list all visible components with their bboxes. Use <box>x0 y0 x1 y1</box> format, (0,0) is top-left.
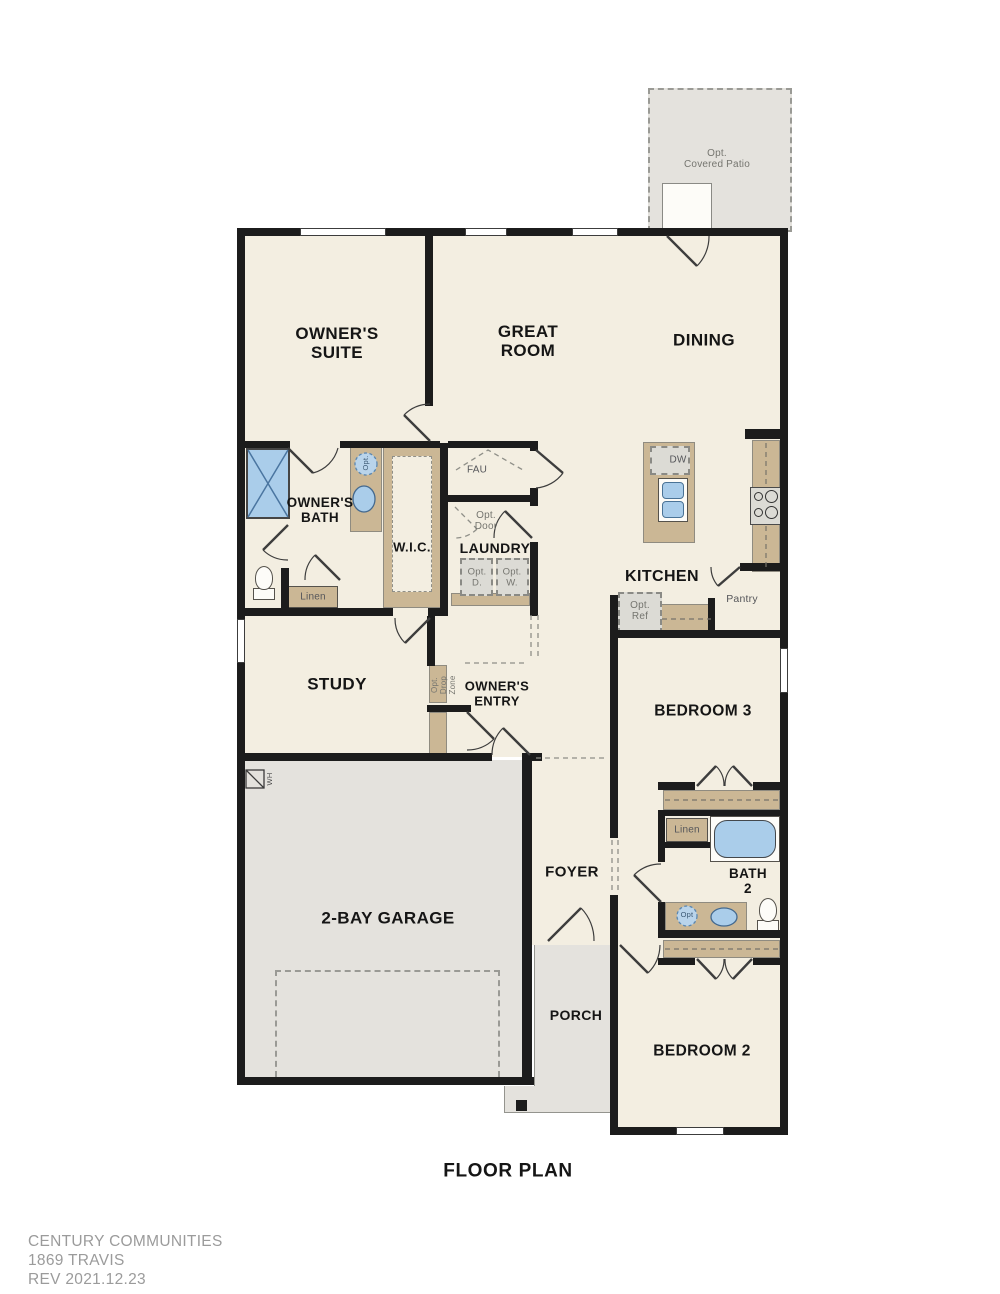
footer-model: 1869 TRAVIS <box>28 1251 223 1270</box>
shower-glass-icon <box>248 450 288 517</box>
footer-revision: REV 2021.12.23 <box>28 1270 223 1289</box>
room-label-dining: DINING <box>673 330 735 349</box>
room-label-owners-entry: OWNER'S ENTRY <box>465 679 529 708</box>
bath2-linen-label: Linen <box>674 824 699 835</box>
linework-layer <box>0 0 1000 1294</box>
dishwasher-label: DW <box>669 454 686 465</box>
cased-openings <box>465 615 618 893</box>
water-heater-icon <box>246 770 264 788</box>
page-title: FLOOR PLAN <box>443 1160 573 1181</box>
opt-drop-zone-label: Opt. Drop Zone <box>430 675 458 694</box>
room-label-garage: 2-BAY GARAGE <box>321 908 454 927</box>
room-label-study: STUDY <box>307 674 367 693</box>
owners-sink-icon <box>353 486 375 512</box>
opt-dryer-label: Opt. D. <box>468 567 487 588</box>
covered-patio-label: Opt. Covered Patio <box>684 148 750 170</box>
room-label-bedroom2: BEDROOM 2 <box>653 1042 750 1059</box>
bath2-sink-icon <box>711 908 737 926</box>
room-label-wic: W.I.C. <box>393 541 431 556</box>
owners-linen-label: Linen <box>300 591 325 602</box>
floor-plan-canvas: OWNER'S SUITE GREAT ROOM DINING OWNER'S … <box>0 0 1000 1294</box>
opt-washer-label: Opt. W. <box>503 567 522 588</box>
room-label-bedroom3: BEDROOM 3 <box>654 702 751 719</box>
footer-company: CENTURY COMMUNITIES <box>28 1232 223 1251</box>
room-label-foyer: FOYER <box>545 865 599 882</box>
room-label-kitchen: KITCHEN <box>625 568 699 586</box>
room-label-great-room: GREAT ROOM <box>498 322 558 360</box>
room-label-porch: PORCH <box>550 1008 603 1024</box>
room-label-laundry: LAUNDRY <box>460 541 531 557</box>
plan-footer: CENTURY COMMUNITIES 1869 TRAVIS REV 2021… <box>28 1232 223 1289</box>
opt-sink-owners-label: Opt. <box>362 456 370 471</box>
room-label-owners-suite: OWNER'S SUITE <box>295 324 378 362</box>
sink-icons <box>353 453 737 926</box>
fau-label: FAU <box>467 464 487 475</box>
pantry-label: Pantry <box>726 594 758 606</box>
opt-sink-bath2-label: Opt <box>681 911 694 919</box>
room-label-owners-bath: OWNER'S BATH <box>287 495 354 525</box>
opt-ref-label: Opt. Ref <box>630 600 650 622</box>
room-label-bath2: BATH 2 <box>729 866 767 896</box>
opt-door-label: Opt. Door <box>475 510 497 532</box>
water-heater-label: WH <box>266 773 274 786</box>
